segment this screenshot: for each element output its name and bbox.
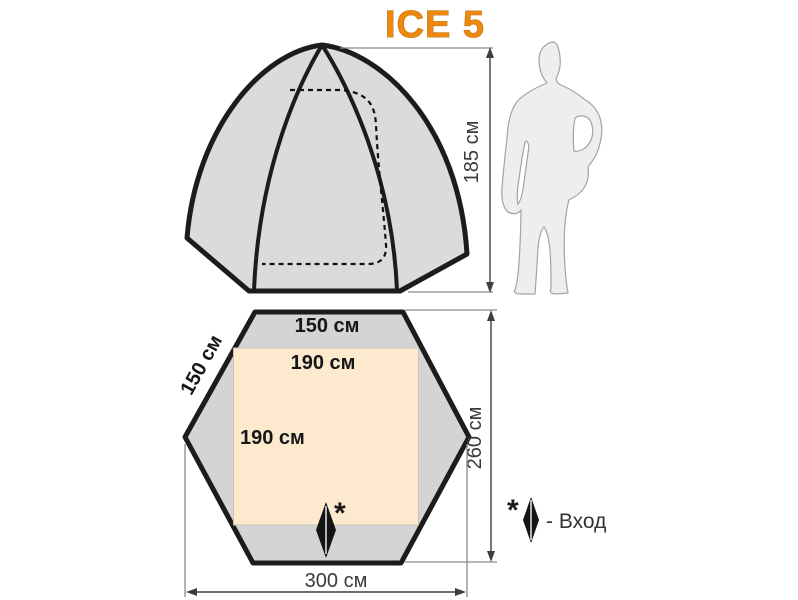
page-title: ICE 5 [385, 4, 485, 46]
tent-floor-plan: * 150 см 150 см 190 см 190 см [176, 312, 469, 563]
tent-side-view [187, 45, 467, 291]
arrow-down-icon [487, 551, 495, 562]
diagram-canvas: ICE 5 185 см [0, 0, 798, 600]
width-dimension-label: 300 см [305, 570, 368, 592]
entrance-legend: * - Вход [507, 494, 606, 543]
legend-entrance-label: - Вход [546, 510, 606, 533]
height-dimension-label: 185 см [461, 121, 483, 184]
arrow-left-icon [186, 588, 197, 596]
arrow-up-icon [486, 47, 494, 58]
inner-floor-depth-label: 190 см [240, 427, 305, 449]
legend-asterisk: * [507, 494, 519, 527]
tent-spec-diagram: ICE 5 185 см [0, 0, 798, 600]
arrow-right-icon [455, 588, 466, 596]
tent-shell [187, 45, 467, 291]
human-scale-silhouette [502, 42, 602, 294]
inner-floor-width-label: 190 см [291, 352, 356, 374]
arrow-up-icon [487, 310, 495, 321]
top-edge-width-label: 150 см [295, 315, 360, 337]
entrance-asterisk: * [334, 497, 346, 530]
